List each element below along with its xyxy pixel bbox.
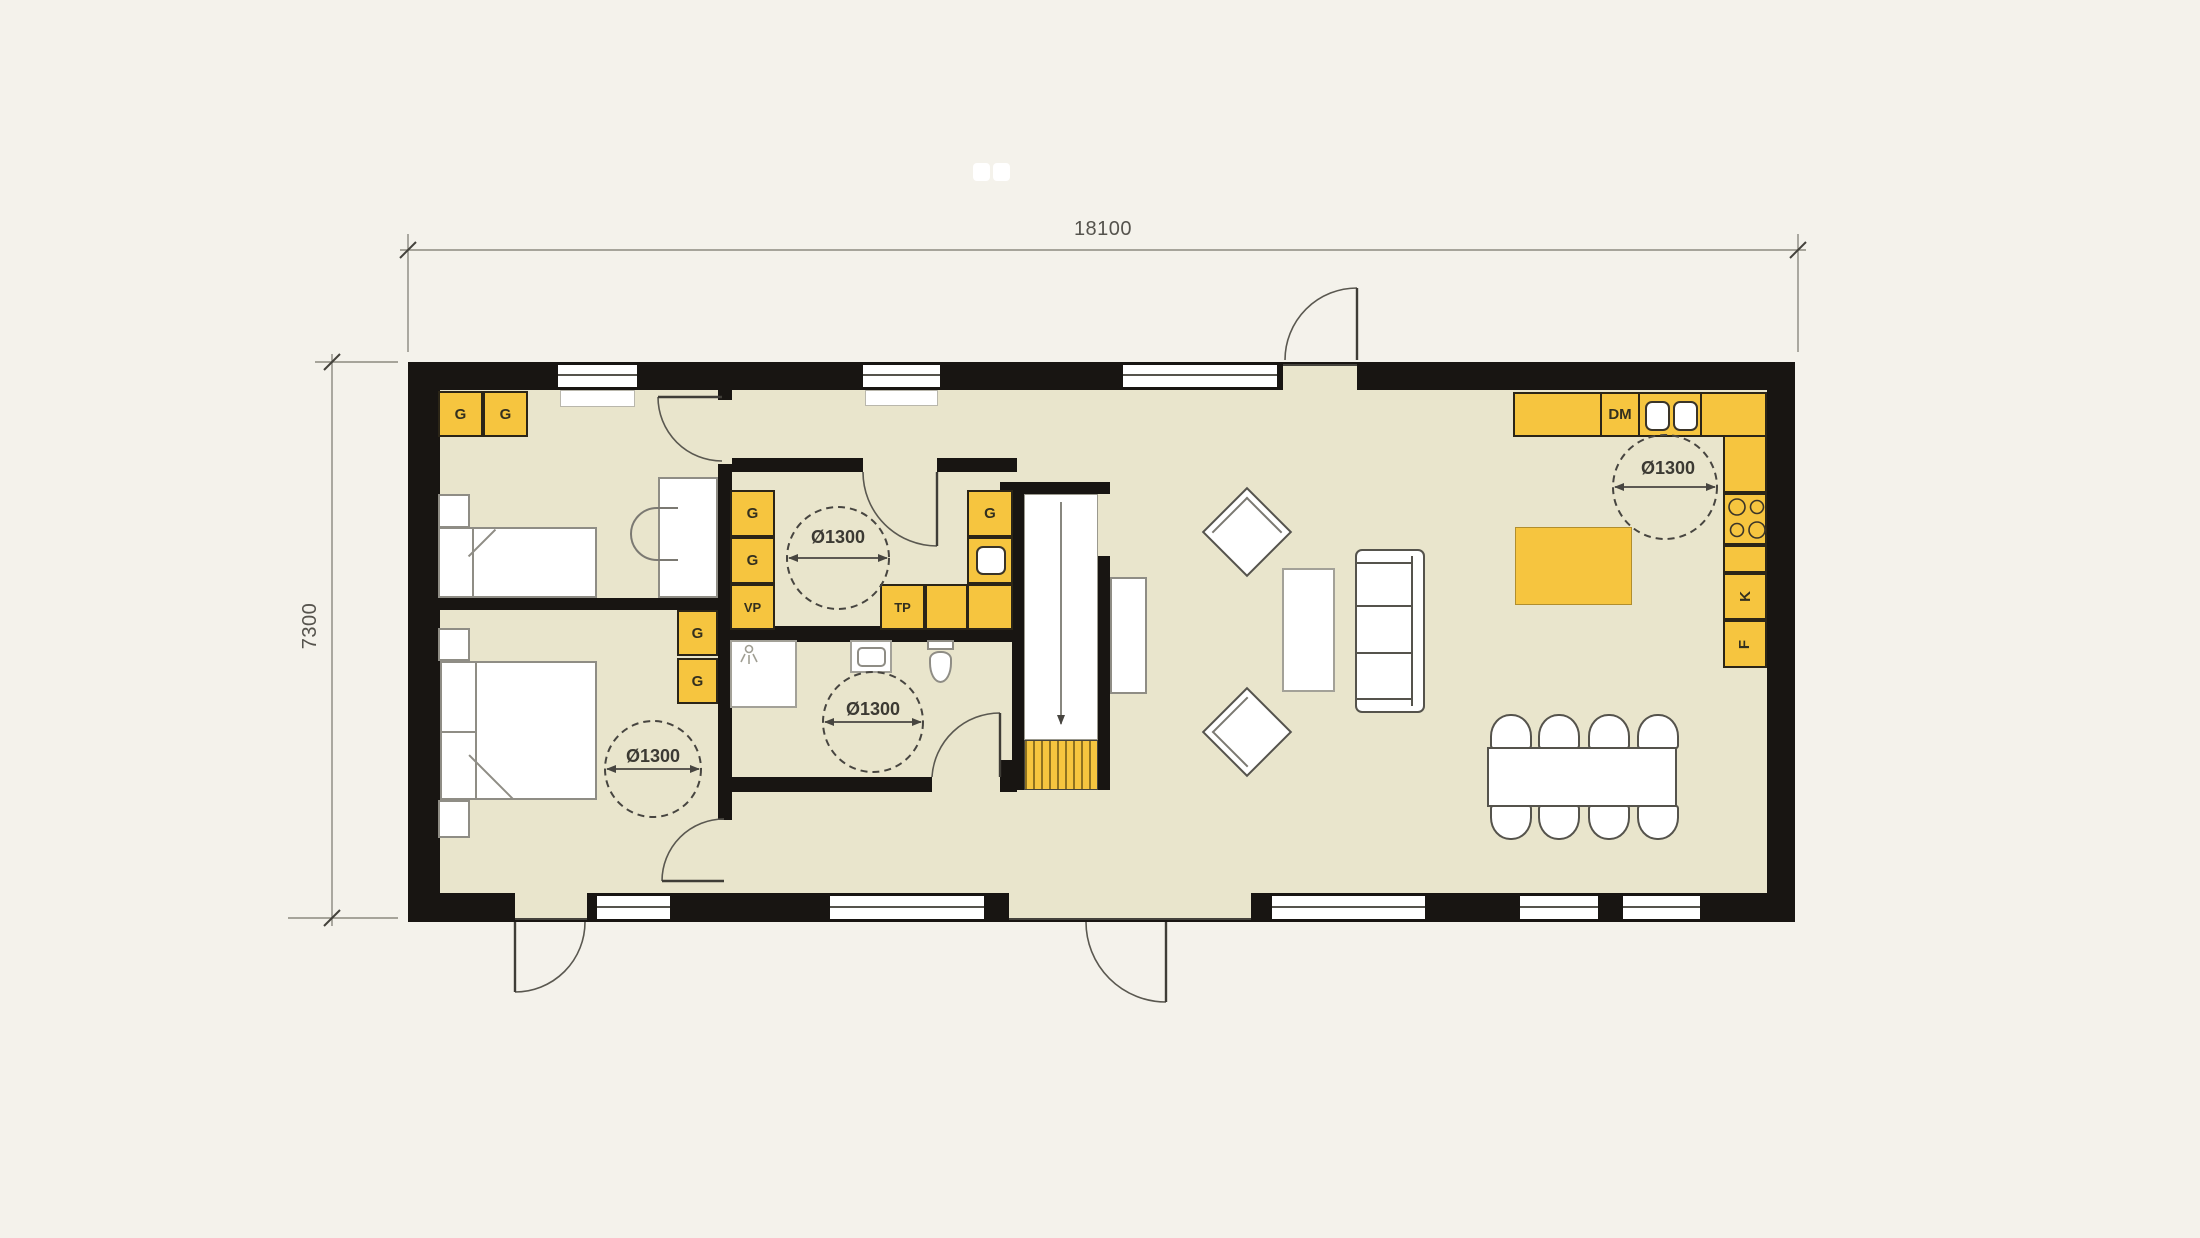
door-arc-bedroom1 <box>658 397 722 461</box>
door-arc-bathroom <box>932 713 1000 777</box>
shower-head-icon <box>741 646 757 665</box>
door-swing-arcs <box>515 288 1357 1002</box>
desk-chair-icon <box>631 508 678 560</box>
cooktop-burners-icon <box>1729 499 1765 538</box>
turning-circle-arrows <box>607 487 1715 769</box>
annotations-layer <box>0 0 2200 1238</box>
dimension-height-label: 7300 <box>300 598 320 654</box>
floor-plan-canvas: G G G G G G VP TP G DM K F <box>0 0 2200 1238</box>
dimension-width-label: 18100 <box>1033 219 1173 239</box>
door-leaves <box>515 288 1357 1002</box>
dimension-ticks <box>324 242 1806 926</box>
turning-circle-label-bedroom2: Ø1300 <box>611 747 695 765</box>
door-arc-terrace <box>1086 922 1166 1002</box>
door-arc-bedroom2 <box>662 819 724 881</box>
turning-circles <box>605 435 1717 817</box>
dimension-lines <box>288 234 1806 926</box>
door-arc-patio <box>515 922 585 992</box>
turning-circle-label-kitchen: Ø1300 <box>1626 459 1710 477</box>
door-arc-entrance <box>1285 288 1357 360</box>
turning-circle-label-utility: Ø1300 <box>796 528 880 546</box>
turning-circle-label-bathroom: Ø1300 <box>831 700 915 718</box>
